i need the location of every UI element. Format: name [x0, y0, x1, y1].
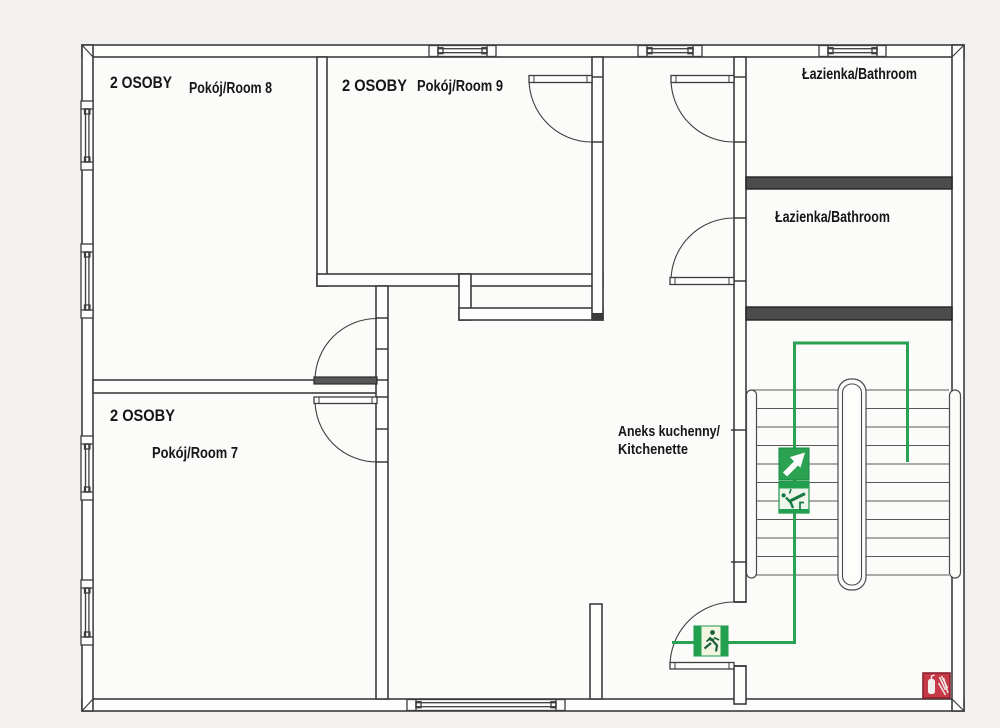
svg-text:2 OSOBY: 2 OSOBY	[342, 76, 408, 95]
svg-text:Pokój/Room 7: Pokój/Room 7	[152, 445, 238, 462]
svg-text:Łazienka/Bathroom: Łazienka/Bathroom	[802, 66, 917, 83]
svg-text:2 OSOBY: 2 OSOBY	[110, 73, 173, 92]
svg-text:2 OSOBY: 2 OSOBY	[110, 406, 176, 425]
svg-text:Aneks kuchenny/: Aneks kuchenny/	[618, 423, 721, 440]
svg-text:Pokój/Room 9: Pokój/Room 9	[417, 78, 503, 95]
svg-text:Kitchenette: Kitchenette	[618, 441, 688, 458]
svg-text:Pokój/Room 8: Pokój/Room 8	[189, 80, 272, 97]
svg-text:Łazienka/Bathroom: Łazienka/Bathroom	[775, 209, 890, 226]
